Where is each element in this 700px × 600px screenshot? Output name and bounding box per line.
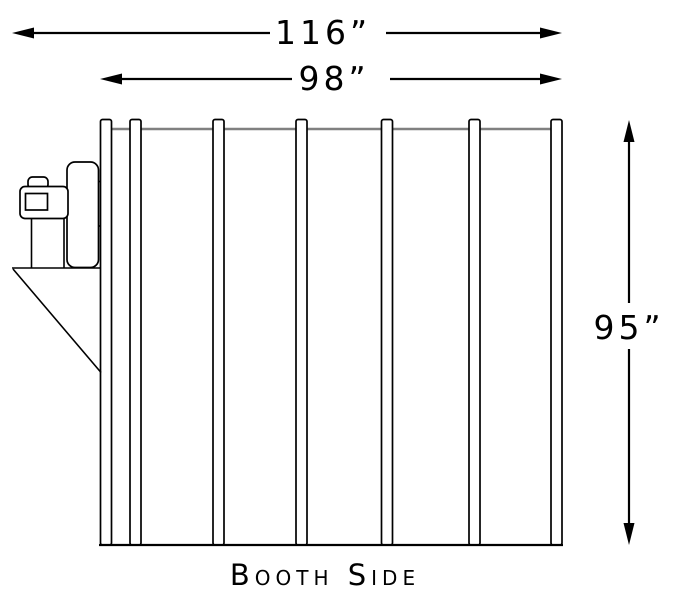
dimension-booth-width: 98” [100, 59, 562, 98]
booth-rib-2 [130, 120, 141, 546]
fan-motor-assembly [12, 162, 101, 373]
booth-side-drawing: 116” 98” 95” Booth Side [0, 0, 700, 600]
booth-rib-5 [382, 120, 393, 546]
arrow-right-icon [540, 28, 562, 39]
booth-body [99, 120, 563, 546]
booth-height-label: 95” [593, 308, 664, 347]
hopper-chute-diagonal [13, 269, 101, 373]
booth-rib-6 [469, 120, 480, 546]
booth-width-label: 98” [298, 59, 369, 98]
dimension-booth-height: 95” [593, 120, 664, 545]
booth-rib-1-left-wall [101, 120, 112, 546]
dimension-overall-width: 116” [12, 13, 562, 52]
arrow-left-icon [12, 28, 34, 39]
motor-junction-box [26, 194, 48, 211]
arrow-down-icon [624, 523, 635, 545]
overall-width-label: 116” [275, 13, 371, 52]
booth-rib-4 [296, 120, 307, 546]
drawing-caption: Booth Side [230, 558, 420, 592]
fan-housing [67, 162, 99, 268]
arrow-left-icon [100, 74, 122, 85]
booth-side-drawing-page: 116” 98” 95” Booth Side [0, 0, 700, 600]
arrow-up-icon [624, 120, 635, 142]
booth-rib-3 [213, 120, 224, 546]
booth-rib-7-right-wall [551, 120, 562, 546]
arrow-right-icon [540, 74, 562, 85]
